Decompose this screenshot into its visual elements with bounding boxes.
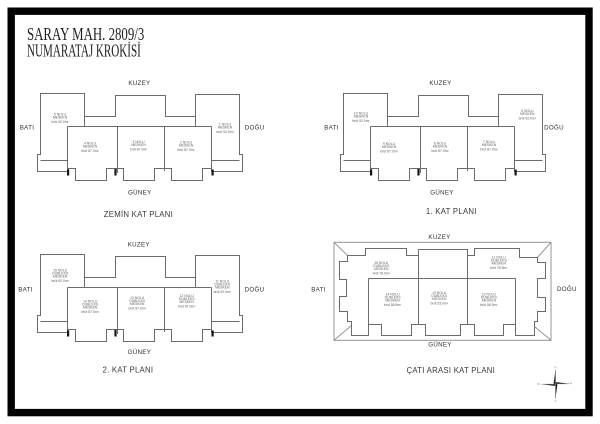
svg-text:KUZEY: KUZEY [128,242,150,249]
svg-text:ZEMİN KAT PLANI: ZEMİN KAT PLANI [104,210,173,219]
svg-text:BATI: BATI [20,124,35,131]
svg-text:GÜNEY: GÜNEY [128,349,152,356]
svg-text:S: S [555,399,557,403]
svg-text:KUZEY: KUZEY [428,234,450,241]
svg-text:E: E [570,381,572,385]
svg-text:1. KAT PLANI: 1. KAT PLANI [426,207,477,216]
svg-text:KUZEY: KUZEY [429,80,451,87]
svg-text:N: N [555,365,557,369]
svg-text:2. KAT PLANI: 2. KAT PLANI [102,365,153,374]
svg-text:KUZEY: KUZEY [128,80,150,87]
svg-text:DOĞU: DOĞU [557,286,577,293]
svg-text:W: W [537,382,540,386]
svg-text:DOĞU: DOĞU [245,125,265,132]
svg-text:12 NOLUDUBLEKSMESKENbrüt 58.9m: 12 NOLUDUBLEKSMESKENbrüt 58.9m² [480,292,498,307]
svg-text:BATI: BATI [324,125,339,132]
svg-text:11 NOLUDUBLEKSMESKENbrüt 92.0m: 11 NOLUDUBLEKSMESKENbrüt 92.0m² [214,280,232,295]
svg-text:GÜNEY: GÜNEY [430,189,454,196]
svg-text:13 NOLUDUBLEKSMESKENbrüt 53.0m: 13 NOLUDUBLEKSMESKENbrüt 53.0m² [431,291,449,306]
svg-text:14 NOLUDUBLEKSMESKENbrüt 87.0m: 14 NOLUDUBLEKSMESKENbrüt 87.0m² [82,300,100,315]
svg-text:BATI: BATI [311,287,326,294]
svg-text:DOĞU: DOĞU [245,286,265,293]
svg-text:13 NOLUDUBLEKSMESKENbrüt 87.0m: 13 NOLUDUBLEKSMESKENbrüt 87.0m² [129,296,147,311]
svg-text:10 NOLUMESKENbrüt 92.0m²: 10 NOLUMESKENbrüt 92.0m² [352,112,370,124]
svg-text:NUMARATAJ KROKİSİ: NUMARATAJ KROKİSİ [27,41,141,61]
svg-text:12 NOLUDUBLEKSMESKENbrüt 87.0m: 12 NOLUDUBLEKSMESKENbrüt 87.0m² [178,294,196,309]
svg-text:BATI: BATI [18,287,33,294]
svg-text:11 NOLUDUBLEKSMESKENbrüt 78.9m: 11 NOLUDUBLEKSMESKENbrüt 78.9m² [490,256,508,271]
svg-text:ÇATI ARASI KAT PLANI: ÇATI ARASI KAT PLANI [406,366,495,375]
svg-text:DOĞU: DOĞU [544,125,564,132]
svg-text:14 NOLUDUBLEKSMESKENbrüt 58.9m: 14 NOLUDUBLEKSMESKENbrüt 58.9m² [384,292,402,307]
svg-text:15 NOLUDUBLEKSMESKENbrüt 78.9m: 15 NOLUDUBLEKSMESKENbrüt 78.9m² [373,261,391,276]
svg-text:15 NOLUDUBLEKSMESKENbrüt 92.0m: 15 NOLUDUBLEKSMESKENbrüt 92.0m² [52,269,70,284]
svg-text:GÜNEY: GÜNEY [128,189,152,196]
svg-text:GÜNEY: GÜNEY [428,341,452,348]
